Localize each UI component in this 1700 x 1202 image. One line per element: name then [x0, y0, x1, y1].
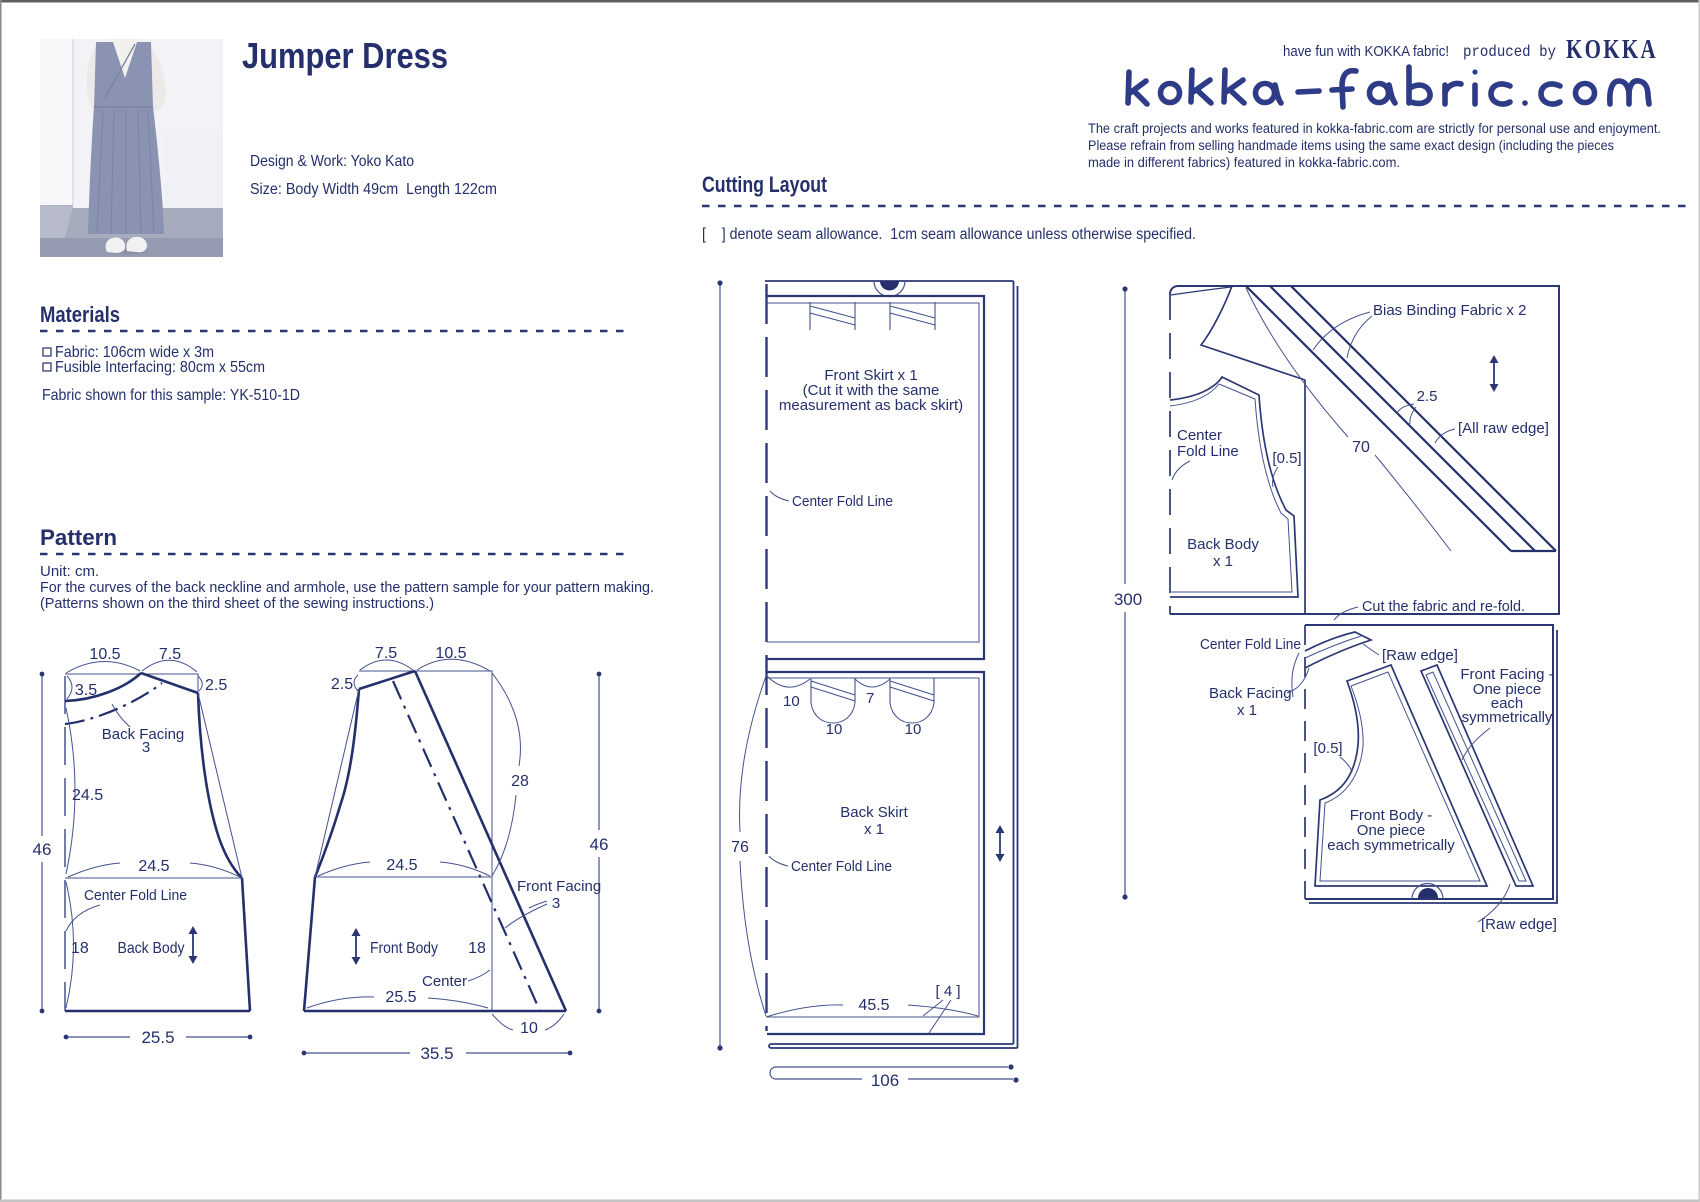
- svg-text:Back Facing: Back Facing: [1209, 685, 1292, 702]
- svg-text:7.5: 7.5: [375, 645, 397, 662]
- svg-text:each symmetrically: each symmetrically: [1327, 837, 1455, 854]
- svg-text:Bias Binding Fabric x 2: Bias Binding Fabric x 2: [1373, 302, 1526, 319]
- svg-text:25.5: 25.5: [385, 989, 416, 1006]
- svg-text:symmetrically: symmetrically: [1462, 709, 1553, 726]
- svg-text:3: 3: [552, 895, 560, 912]
- svg-text:x 1: x 1: [1237, 702, 1257, 719]
- svg-text:Fabric shown for this sample:: Fabric shown for this sample: YK-510-1D: [42, 387, 300, 404]
- svg-text:10.5: 10.5: [435, 645, 466, 662]
- svg-text:45.5: 45.5: [858, 997, 889, 1014]
- svg-text:10: 10: [826, 721, 843, 738]
- svg-text:produced by: produced by: [1463, 43, 1556, 61]
- svg-text:Unit: cm.: Unit: cm.: [40, 563, 99, 580]
- svg-text:[ ] denote seam allowance.: [ ] denote seam allowance. 1cm seam allo…: [702, 226, 1196, 243]
- svg-text:Back Body: Back Body: [1187, 536, 1259, 553]
- svg-text:Design & Work: Yoko Kato: Design & Work: Yoko Kato: [250, 153, 414, 170]
- svg-text:Front Body: Front Body: [370, 940, 438, 957]
- svg-text:35.5: 35.5: [420, 1044, 453, 1063]
- svg-text:7: 7: [866, 690, 874, 707]
- svg-text:Fold Line: Fold Line: [1177, 443, 1239, 460]
- svg-text:Cut the fabric and re-fold.: Cut the fabric and re-fold.: [1362, 598, 1525, 615]
- svg-text:have fun with KOKKA fabric!: have fun with KOKKA fabric!: [1283, 43, 1449, 60]
- svg-text:Front Facing: Front Facing: [517, 878, 601, 895]
- svg-text:x 1: x 1: [1213, 553, 1233, 570]
- svg-text:25.5: 25.5: [141, 1028, 174, 1047]
- svg-text:Jumper Dress: Jumper Dress: [242, 35, 448, 76]
- svg-text:measurement as back skirt): measurement as back skirt): [779, 397, 963, 414]
- svg-text:Center Fold Line: Center Fold Line: [792, 493, 893, 510]
- svg-text:24.5: 24.5: [386, 857, 417, 874]
- svg-text:Back Skirt: Back Skirt: [840, 804, 908, 821]
- svg-text:70: 70: [1352, 439, 1370, 456]
- svg-text:106: 106: [871, 1071, 899, 1090]
- svg-text:28: 28: [511, 773, 529, 790]
- svg-text:10: 10: [905, 721, 922, 738]
- svg-text:[0.5]: [0.5]: [1313, 740, 1342, 757]
- svg-text:10: 10: [520, 1020, 538, 1037]
- svg-text:made in different fabrics) fea: made in different fabrics) featured in k…: [1088, 155, 1400, 170]
- svg-text:[All raw edge]: [All raw edge]: [1458, 420, 1549, 437]
- svg-text:76: 76: [731, 839, 749, 856]
- svg-text:2.5: 2.5: [331, 676, 353, 693]
- svg-text:[ 4 ]: [ 4 ]: [935, 983, 960, 1000]
- svg-text:300: 300: [1114, 590, 1142, 609]
- svg-text:Fusible Interfacing: 80cm x 55: Fusible Interfacing: 80cm x 55cm: [55, 359, 265, 376]
- svg-text:Pattern: Pattern: [40, 525, 117, 550]
- svg-text:Materials: Materials: [40, 302, 120, 327]
- svg-text:Back Body: Back Body: [118, 940, 185, 957]
- svg-text:10.5: 10.5: [89, 646, 120, 663]
- svg-text:Center Fold Line: Center Fold Line: [1200, 636, 1301, 653]
- svg-text:Please refrain from selling ha: Please refrain from selling handmade ite…: [1088, 138, 1614, 153]
- svg-text:10: 10: [783, 693, 800, 710]
- svg-text:2.5: 2.5: [1417, 388, 1438, 405]
- svg-text:Center: Center: [1177, 427, 1222, 444]
- svg-text:24.5: 24.5: [72, 787, 103, 804]
- svg-text:18: 18: [468, 940, 486, 957]
- svg-text:Center: Center: [422, 973, 467, 990]
- svg-text:Size: Body Width 49cm Length: Size: Body Width 49cm Length 122cm: [250, 181, 497, 198]
- svg-text:[Raw edge]: [Raw edge]: [1481, 916, 1557, 933]
- svg-text:Center Fold Line: Center Fold Line: [84, 887, 187, 904]
- svg-text:(Patterns shown on the third s: (Patterns shown on the third sheet of th…: [40, 595, 434, 612]
- svg-text:3: 3: [142, 739, 150, 756]
- svg-text:Cutting Layout: Cutting Layout: [702, 172, 828, 197]
- svg-text:7.5: 7.5: [159, 646, 181, 663]
- svg-text:[0.5]: [0.5]: [1272, 450, 1301, 467]
- svg-text:3.5: 3.5: [75, 682, 97, 699]
- svg-text:The craft projects and works f: The craft projects and works featured in…: [1088, 121, 1661, 136]
- svg-text:For the curves of the back nec: For the curves of the back neckline and …: [40, 579, 654, 596]
- svg-text:x 1: x 1: [864, 821, 884, 838]
- svg-text:46: 46: [33, 840, 52, 859]
- svg-text:2.5: 2.5: [205, 677, 227, 694]
- svg-text:18: 18: [71, 940, 89, 957]
- svg-text:46: 46: [590, 835, 609, 854]
- svg-text:[Raw edge]: [Raw edge]: [1382, 647, 1458, 664]
- svg-text:Center Fold Line: Center Fold Line: [791, 858, 892, 875]
- svg-text:KOKKA: KOKKA: [1566, 34, 1658, 64]
- svg-text:24.5: 24.5: [138, 858, 169, 875]
